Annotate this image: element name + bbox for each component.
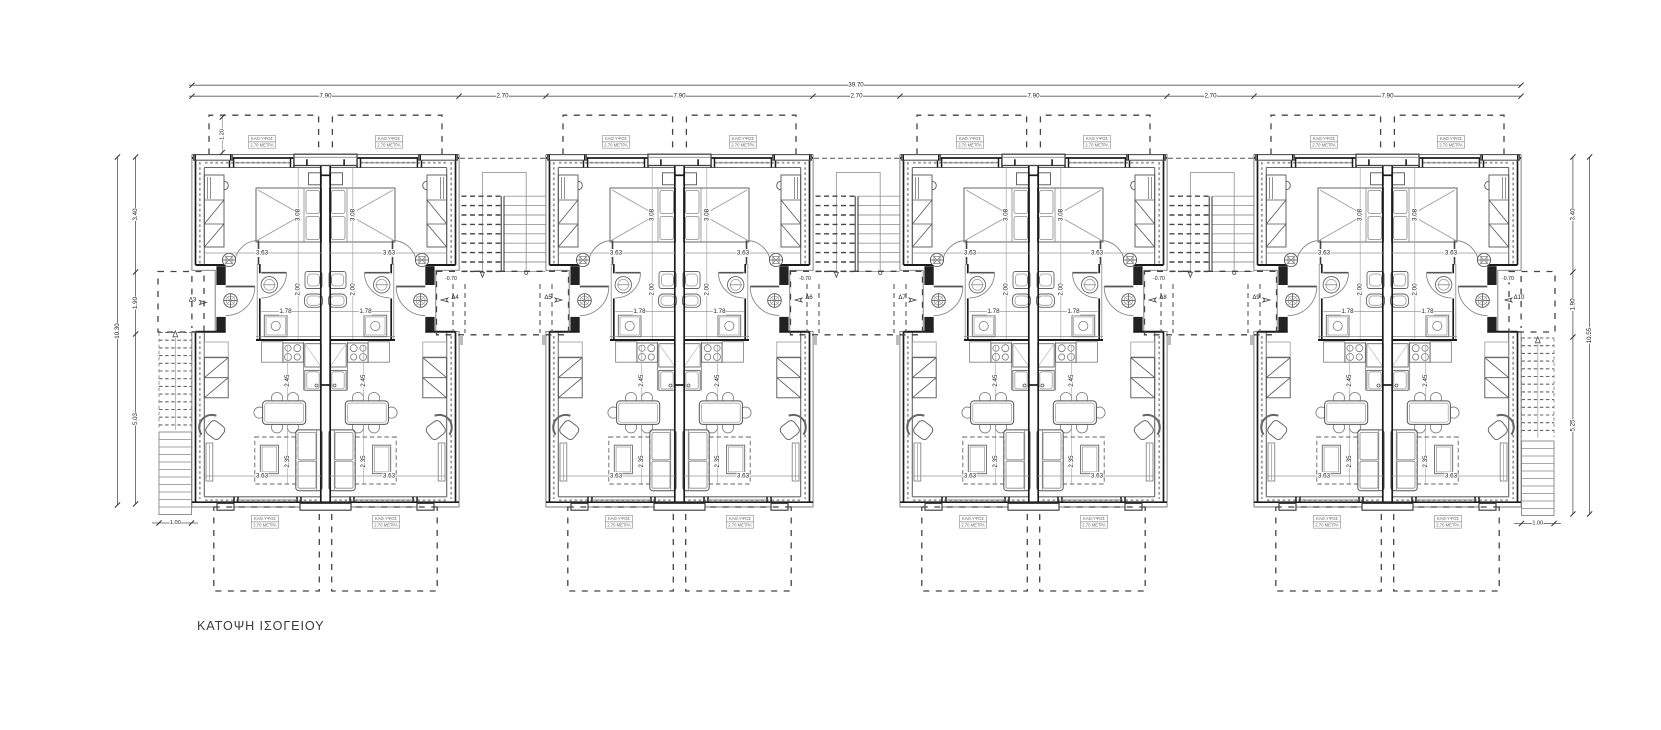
svg-text:1.78: 1.78 — [987, 308, 1000, 315]
svg-text:2.00: 2.00 — [295, 283, 302, 296]
svg-text:Δ4: Δ4 — [451, 295, 459, 301]
svg-text:1.90: 1.90 — [1569, 298, 1576, 311]
svg-text:3.08: 3.08 — [349, 208, 356, 221]
svg-text:-0.70: -0.70 — [445, 276, 457, 282]
svg-text:2.00: 2.00 — [349, 283, 356, 296]
svg-text:2.70 ΜΕΤΡΑ: 2.70 ΜΕΤΡΑ — [1085, 143, 1109, 148]
svg-text:ΚΑΘ.ΥΨΟΣ: ΚΑΘ.ΥΨΟΣ — [1440, 136, 1462, 141]
svg-text:7.90: 7.90 — [1027, 93, 1040, 100]
svg-text:-0.70: -0.70 — [799, 276, 811, 282]
svg-text:2.35: 2.35 — [284, 455, 291, 468]
svg-text:1.00: 1.00 — [170, 520, 181, 526]
svg-text:1.90: 1.90 — [132, 296, 139, 309]
svg-text:3.40: 3.40 — [1569, 208, 1576, 221]
svg-text:Δ3: Δ3 — [189, 298, 197, 304]
svg-text:2.70 ΜΕΤΡΑ: 2.70 ΜΕΤΡΑ — [253, 523, 277, 528]
svg-text:ΚΑΘ.ΥΨΟΣ: ΚΑΘ.ΥΨΟΣ — [605, 136, 627, 141]
svg-text:ΚΑΘ.ΥΨΟΣ: ΚΑΘ.ΥΨΟΣ — [732, 136, 754, 141]
svg-text:ΚΑΘ.ΥΨΟΣ: ΚΑΘ.ΥΨΟΣ — [1083, 516, 1105, 521]
svg-text:ΚΑΘ.ΥΨΟΣ: ΚΑΘ.ΥΨΟΣ — [959, 136, 981, 141]
svg-text:3.63: 3.63 — [610, 250, 623, 257]
svg-text:2.70 ΜΕΤΡΑ: 2.70 ΜΕΤΡΑ — [1315, 523, 1339, 528]
svg-text:3.63: 3.63 — [1318, 473, 1331, 480]
svg-text:7.90: 7.90 — [319, 93, 332, 100]
svg-text:2.70 ΜΕΤΡΑ: 2.70 ΜΕΤΡΑ — [607, 523, 631, 528]
svg-text:2.70 ΜΕΤΡΑ: 2.70 ΜΕΤΡΑ — [374, 523, 398, 528]
svg-text:2.70 ΜΕΤΡΑ: 2.70 ΜΕΤΡΑ — [1082, 523, 1106, 528]
svg-text:3.08: 3.08 — [1003, 208, 1010, 221]
svg-text:2.70 ΜΕΤΡΑ: 2.70 ΜΕΤΡΑ — [1436, 523, 1460, 528]
svg-text:2.70 ΜΕΤΡΑ: 2.70 ΜΕΤΡΑ — [250, 143, 274, 148]
svg-text:3.40: 3.40 — [132, 208, 139, 221]
svg-text:1.78: 1.78 — [1067, 308, 1080, 315]
svg-text:3.08: 3.08 — [703, 208, 710, 221]
svg-text:5.03: 5.03 — [132, 412, 139, 425]
svg-text:2.45: 2.45 — [714, 374, 721, 387]
svg-text:ΚΑΘ.ΥΨΟΣ: ΚΑΘ.ΥΨΟΣ — [251, 136, 273, 141]
svg-text:Δ6: Δ6 — [805, 295, 813, 301]
svg-text:1.20: 1.20 — [219, 129, 225, 140]
svg-text:2.45: 2.45 — [360, 374, 367, 387]
svg-text:1.78: 1.78 — [713, 308, 726, 315]
svg-text:7.90: 7.90 — [673, 93, 686, 100]
svg-text:1.78: 1.78 — [279, 308, 292, 315]
svg-text:2.70 ΜΕΤΡΑ: 2.70 ΜΕΤΡΑ — [728, 523, 752, 528]
svg-text:2.00: 2.00 — [649, 283, 656, 296]
svg-text:39.70: 39.70 — [848, 82, 864, 89]
svg-text:ΚΑΘ.ΥΨΟΣ: ΚΑΘ.ΥΨΟΣ — [962, 516, 984, 521]
svg-text:2.00: 2.00 — [703, 283, 710, 296]
svg-text:3.63: 3.63 — [964, 250, 977, 257]
svg-text:ΚΑΘ.ΥΨΟΣ: ΚΑΘ.ΥΨΟΣ — [375, 516, 397, 521]
svg-text:3.63: 3.63 — [1445, 473, 1458, 480]
svg-text:2.00: 2.00 — [1357, 283, 1364, 296]
svg-text:-0.70: -0.70 — [1502, 276, 1514, 282]
svg-text:Δ10: Δ10 — [1514, 295, 1525, 301]
svg-text:2.00: 2.00 — [1057, 283, 1064, 296]
svg-text:3.63: 3.63 — [1318, 250, 1331, 257]
svg-text:2.70 ΜΕΤΡΑ: 2.70 ΜΕΤΡΑ — [377, 143, 401, 148]
svg-text:3.63: 3.63 — [383, 473, 396, 480]
svg-text:3.63: 3.63 — [383, 250, 396, 257]
svg-text:10.30: 10.30 — [114, 323, 121, 339]
svg-text:3.08: 3.08 — [1357, 208, 1364, 221]
svg-text:7.90: 7.90 — [1381, 93, 1394, 100]
svg-text:2.70 ΜΕΤΡΑ: 2.70 ΜΕΤΡΑ — [604, 143, 628, 148]
svg-text:ΚΑΤΟΨΗ ΙΣΟΓΕΙΟΥ: ΚΑΤΟΨΗ ΙΣΟΓΕΙΟΥ — [197, 619, 324, 633]
svg-text:2.70: 2.70 — [850, 93, 863, 100]
svg-text:Δ9: Δ9 — [1252, 295, 1260, 301]
svg-text:2.35: 2.35 — [638, 455, 645, 468]
svg-text:2.45: 2.45 — [1068, 374, 1075, 387]
svg-text:2.45: 2.45 — [638, 374, 645, 387]
svg-text:ΚΑΘ.ΥΨΟΣ: ΚΑΘ.ΥΨΟΣ — [1437, 516, 1459, 521]
svg-text:ΚΑΘ.ΥΨΟΣ: ΚΑΘ.ΥΨΟΣ — [378, 136, 400, 141]
svg-text:1.78: 1.78 — [1341, 308, 1354, 315]
svg-text:3.08: 3.08 — [1057, 208, 1064, 221]
svg-text:2.70 ΜΕΤΡΑ: 2.70 ΜΕΤΡΑ — [1312, 143, 1336, 148]
svg-text:1.78: 1.78 — [633, 308, 646, 315]
svg-text:2.35: 2.35 — [1068, 455, 1075, 468]
svg-text:2.35: 2.35 — [360, 455, 367, 468]
svg-text:10.55: 10.55 — [1586, 327, 1593, 343]
svg-text:3.63: 3.63 — [1091, 250, 1104, 257]
svg-text:3.08: 3.08 — [295, 208, 302, 221]
svg-text:Δ8: Δ8 — [1159, 295, 1167, 301]
svg-text:3.63: 3.63 — [1445, 250, 1458, 257]
svg-text:3.63: 3.63 — [737, 473, 750, 480]
svg-text:1.00: 1.00 — [1532, 521, 1543, 527]
svg-text:3.63: 3.63 — [1091, 473, 1104, 480]
svg-text:3.63: 3.63 — [737, 250, 750, 257]
svg-text:ΚΑΘ.ΥΨΟΣ: ΚΑΘ.ΥΨΟΣ — [254, 516, 276, 521]
svg-text:Δ7: Δ7 — [898, 295, 906, 301]
svg-text:1.78: 1.78 — [1421, 308, 1434, 315]
svg-text:2.45: 2.45 — [284, 374, 291, 387]
svg-text:ΚΑΘ.ΥΨΟΣ: ΚΑΘ.ΥΨΟΣ — [1313, 136, 1335, 141]
svg-text:1.78: 1.78 — [359, 308, 372, 315]
svg-text:2.70: 2.70 — [496, 93, 509, 100]
svg-text:3.08: 3.08 — [649, 208, 656, 221]
svg-text:2.00: 2.00 — [1411, 283, 1418, 296]
svg-text:ΚΑΘ.ΥΨΟΣ: ΚΑΘ.ΥΨΟΣ — [608, 516, 630, 521]
svg-text:2.45: 2.45 — [1346, 374, 1353, 387]
svg-text:-0.70: -0.70 — [1153, 276, 1165, 282]
svg-text:3.63: 3.63 — [964, 473, 977, 480]
svg-text:2.45: 2.45 — [1422, 374, 1429, 387]
svg-text:ΚΑΘ.ΥΨΟΣ: ΚΑΘ.ΥΨΟΣ — [1086, 136, 1108, 141]
svg-text:3.63: 3.63 — [256, 473, 269, 480]
svg-text:ΚΑΘ.ΥΨΟΣ: ΚΑΘ.ΥΨΟΣ — [1316, 516, 1338, 521]
svg-text:2.35: 2.35 — [992, 455, 999, 468]
svg-text:3.63: 3.63 — [256, 250, 269, 257]
svg-text:2.35: 2.35 — [1422, 455, 1429, 468]
svg-text:2.70: 2.70 — [1204, 93, 1217, 100]
svg-text:3.08: 3.08 — [1411, 208, 1418, 221]
svg-text:2.70 ΜΕΤΡΑ: 2.70 ΜΕΤΡΑ — [1439, 143, 1463, 148]
svg-text:2.35: 2.35 — [1346, 455, 1353, 468]
svg-text:2.70 ΜΕΤΡΑ: 2.70 ΜΕΤΡΑ — [958, 143, 982, 148]
svg-text:3.63: 3.63 — [610, 473, 623, 480]
svg-text:2.70 ΜΕΤΡΑ: 2.70 ΜΕΤΡΑ — [731, 143, 755, 148]
svg-text:2.45: 2.45 — [992, 374, 999, 387]
svg-text:2.70 ΜΕΤΡΑ: 2.70 ΜΕΤΡΑ — [961, 523, 985, 528]
svg-text:5.25: 5.25 — [1569, 419, 1576, 432]
svg-text:Δ5: Δ5 — [544, 295, 552, 301]
svg-text:2.35: 2.35 — [714, 455, 721, 468]
svg-text:ΚΑΘ.ΥΨΟΣ: ΚΑΘ.ΥΨΟΣ — [729, 516, 751, 521]
svg-text:2.00: 2.00 — [1003, 283, 1010, 296]
